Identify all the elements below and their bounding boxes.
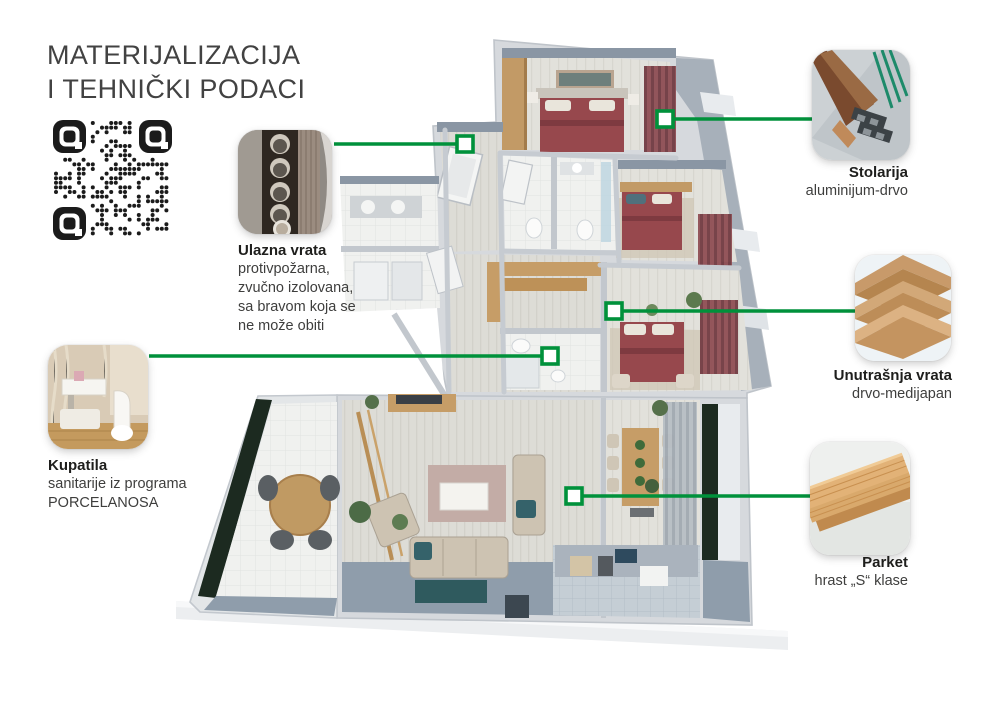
marker-ulazna-vrata	[457, 136, 473, 152]
marker-stolarija	[657, 111, 673, 127]
callout-title: Ulazna vrata	[238, 241, 358, 260]
callout-image-unutrasnja-vrata	[855, 255, 951, 361]
window-profile-art	[812, 50, 910, 160]
bathroom-art	[48, 345, 148, 449]
wardrobe	[502, 58, 524, 150]
marker-unutrasnja-vrata	[606, 303, 622, 319]
marker-parket	[566, 488, 582, 504]
kitchen	[553, 545, 700, 618]
lower-wing	[190, 394, 752, 625]
callout-label-stolarija: Stolarija aluminijum-drvo	[768, 163, 908, 201]
callout-title: Kupatila	[48, 456, 208, 475]
qr-code-icon	[53, 118, 172, 242]
title-line-1: MATERIJALIZACIJA	[47, 38, 305, 72]
bathrooms-upper	[501, 155, 617, 250]
callout-image-ulazna-vrata	[238, 130, 332, 234]
callout-title: Unutrašnja vrata	[800, 366, 952, 385]
entrance-door-lock-art	[238, 130, 332, 234]
title-line-2: I TEHNIČKI PODACI	[47, 72, 305, 106]
upper-wing	[340, 40, 771, 398]
callout-label-kupatila: Kupatila sanitarije iz programa PORCELAN…	[48, 456, 208, 513]
headboard	[536, 88, 628, 99]
bedroom-1	[502, 48, 676, 152]
chaise	[513, 455, 545, 535]
callout-image-parket	[810, 442, 910, 555]
callout-image-kupatila	[48, 345, 148, 449]
teal-rug	[415, 580, 487, 603]
callout-label-parket: Parket hrast „S“ klase	[760, 553, 908, 591]
callout-label-ulazna-vrata: Ulazna vrata protivpožarna, zvučno izolo…	[238, 241, 358, 336]
marker-kupatila	[542, 348, 558, 364]
callout-title: Parket	[760, 553, 908, 572]
mdf-board-stack-art	[855, 255, 951, 361]
bedroom-3	[601, 262, 752, 392]
brochure-page: { "title": { "line1": "MATERIJALIZACIJA"…	[0, 0, 1000, 717]
callout-label-unutrasnja-vrata: Unutrašnja vrata drvo-medijapan	[800, 366, 952, 404]
curtains	[644, 66, 676, 152]
parquet-planks-art	[810, 442, 910, 555]
callout-image-stolarija	[812, 50, 910, 160]
callout-title: Stolarija	[768, 163, 908, 182]
page-title: MATERIJALIZACIJA I TEHNIČKI PODACI	[47, 38, 305, 106]
